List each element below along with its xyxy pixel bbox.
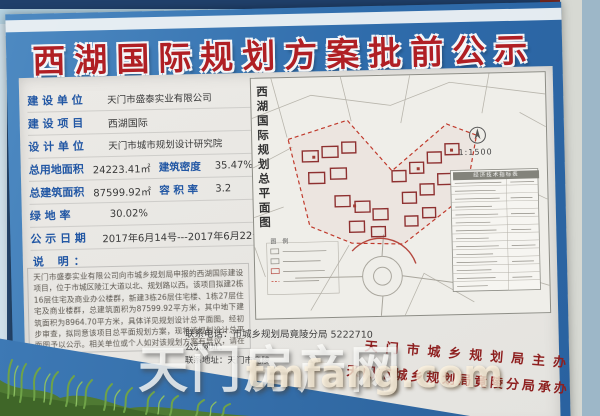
field-value: 西湖国际 xyxy=(108,111,260,129)
field-row-notice-dates: 公 示 日 期 2017年6月14号---2017年6月22号 xyxy=(30,223,262,251)
notice-board-photo: 西湖国际规划方案批前公示 建 设 单 位 天门市盛泰实业有限公司 建 设 项 目… xyxy=(0,0,600,416)
notice-fields: 建 设 单 位 天门市盛泰实业有限公司 建 设 项 目 西湖国际 设 计 单 位… xyxy=(27,85,263,251)
field-value: 24223.41㎡ xyxy=(93,159,159,175)
map-legend-title: 图 例 xyxy=(270,236,290,245)
field-label: 容 积 率 xyxy=(159,181,215,197)
site-plan-drawing xyxy=(251,72,550,319)
field-label: 公 示 日 期 xyxy=(30,229,102,247)
field-value: 天门市盛泰实业有限公司 xyxy=(107,89,259,106)
field-label: 建 设 单 位 xyxy=(27,91,107,109)
field-value: 天门市城市规划设计研究院 xyxy=(108,135,260,152)
field-label: 设 计 单 位 xyxy=(28,137,108,155)
grass-foreground xyxy=(0,346,250,416)
contact-phone: 联系电话：市城乡规划局竟陵分局 5222710 xyxy=(185,328,373,343)
field-label: 总建筑面积 xyxy=(29,183,93,200)
site-plan-map: 西湖国际规划总平面图 1:1500 经济技术指标表 图 例 xyxy=(250,71,551,320)
field-label: 总用地面积 xyxy=(29,160,93,177)
fence-right xyxy=(582,0,600,416)
organizer-stamp: 天门市城乡规划局主办 天门市城乡规划局竟陵分局承办 xyxy=(362,335,575,397)
field-label: 建 设 项 目 xyxy=(28,114,108,132)
field-label: 建筑密度 xyxy=(159,158,215,174)
field-value: 2017年6月14号---2017年6月22号 xyxy=(102,226,262,245)
field-value: 87599.92㎡ xyxy=(93,182,159,198)
map-scale-label: 1:1500 xyxy=(458,147,492,157)
field-label: 绿 地 率 xyxy=(30,206,110,224)
field-value: 30.02% xyxy=(110,205,262,219)
